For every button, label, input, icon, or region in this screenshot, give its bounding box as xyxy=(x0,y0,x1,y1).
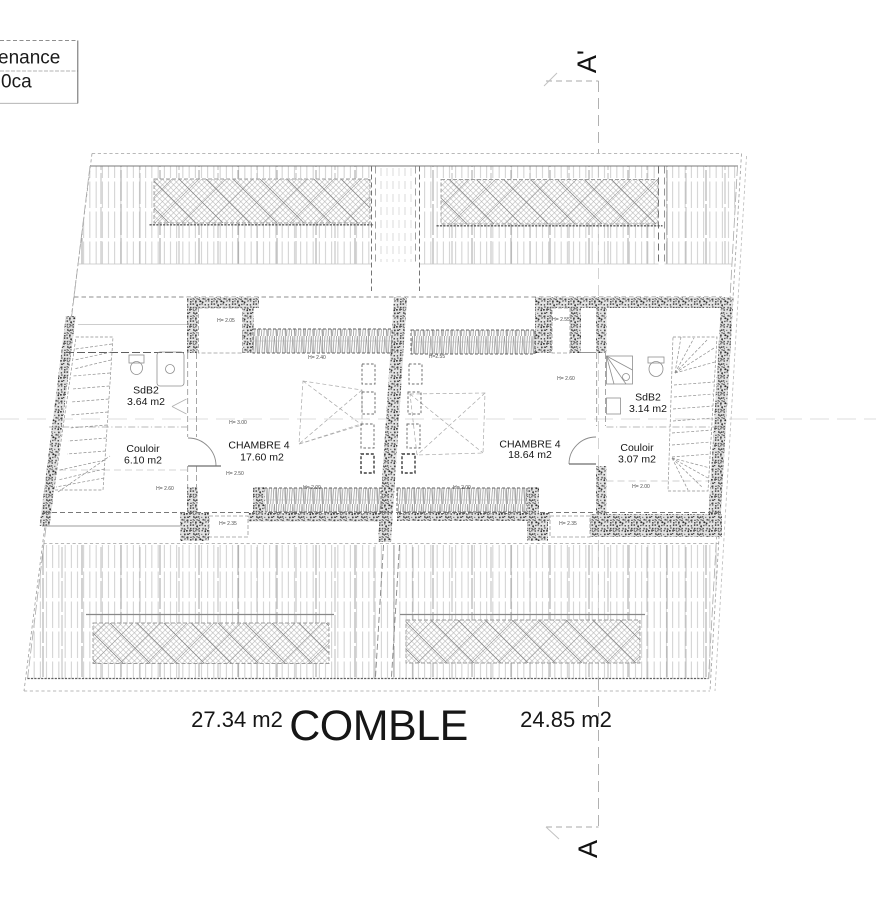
svg-text:H= 2.60: H= 2.60 xyxy=(557,376,575,382)
svg-text:H= 2.05: H= 2.05 xyxy=(217,318,235,324)
svg-text:3.07 m2: 3.07 m2 xyxy=(618,454,656,466)
svg-text:18.64 m2: 18.64 m2 xyxy=(508,449,552,461)
svg-text:H= 2.60: H= 2.60 xyxy=(156,486,174,492)
svg-text:H= 2.35: H= 2.35 xyxy=(219,521,237,527)
svg-text:SdB2: SdB2 xyxy=(635,392,661,404)
svg-text:H= 2.50: H= 2.50 xyxy=(226,471,244,477)
svg-text:Couloir: Couloir xyxy=(126,443,160,455)
svg-text:H= 2.00: H= 2.00 xyxy=(303,485,321,491)
svg-text:H=2.55: H=2.55 xyxy=(429,354,445,360)
svg-text:CHAMBRE 4: CHAMBRE 4 xyxy=(228,440,289,452)
svg-text:6.10 m2: 6.10 m2 xyxy=(124,455,162,467)
svg-text:COMBLE: COMBLE xyxy=(289,702,468,750)
svg-text:H= 2.00: H= 2.00 xyxy=(632,484,650,490)
svg-text:3.14 m2: 3.14 m2 xyxy=(629,403,667,415)
svg-text:enance: enance xyxy=(0,48,60,69)
svg-text:H= 2.35: H= 2.35 xyxy=(559,521,577,527)
svg-text:24.85 m2: 24.85 m2 xyxy=(520,707,612,732)
svg-text:H= 2.55: H= 2.55 xyxy=(552,317,570,323)
svg-text:A': A' xyxy=(572,50,602,73)
svg-text:27.34 m2: 27.34 m2 xyxy=(191,707,283,732)
svg-text:A: A xyxy=(573,840,603,858)
svg-text:H= 2.00: H= 2.00 xyxy=(453,485,471,491)
svg-text:0ca: 0ca xyxy=(1,72,32,93)
svg-text:H= 2.40: H= 2.40 xyxy=(308,355,326,361)
svg-text:SdB2: SdB2 xyxy=(133,385,159,397)
svg-text:H= 3.00: H= 3.00 xyxy=(229,420,247,426)
svg-text:Couloir: Couloir xyxy=(620,442,654,454)
svg-text:3.64 m2: 3.64 m2 xyxy=(127,396,165,408)
svg-text:17.60 m2: 17.60 m2 xyxy=(240,452,284,464)
